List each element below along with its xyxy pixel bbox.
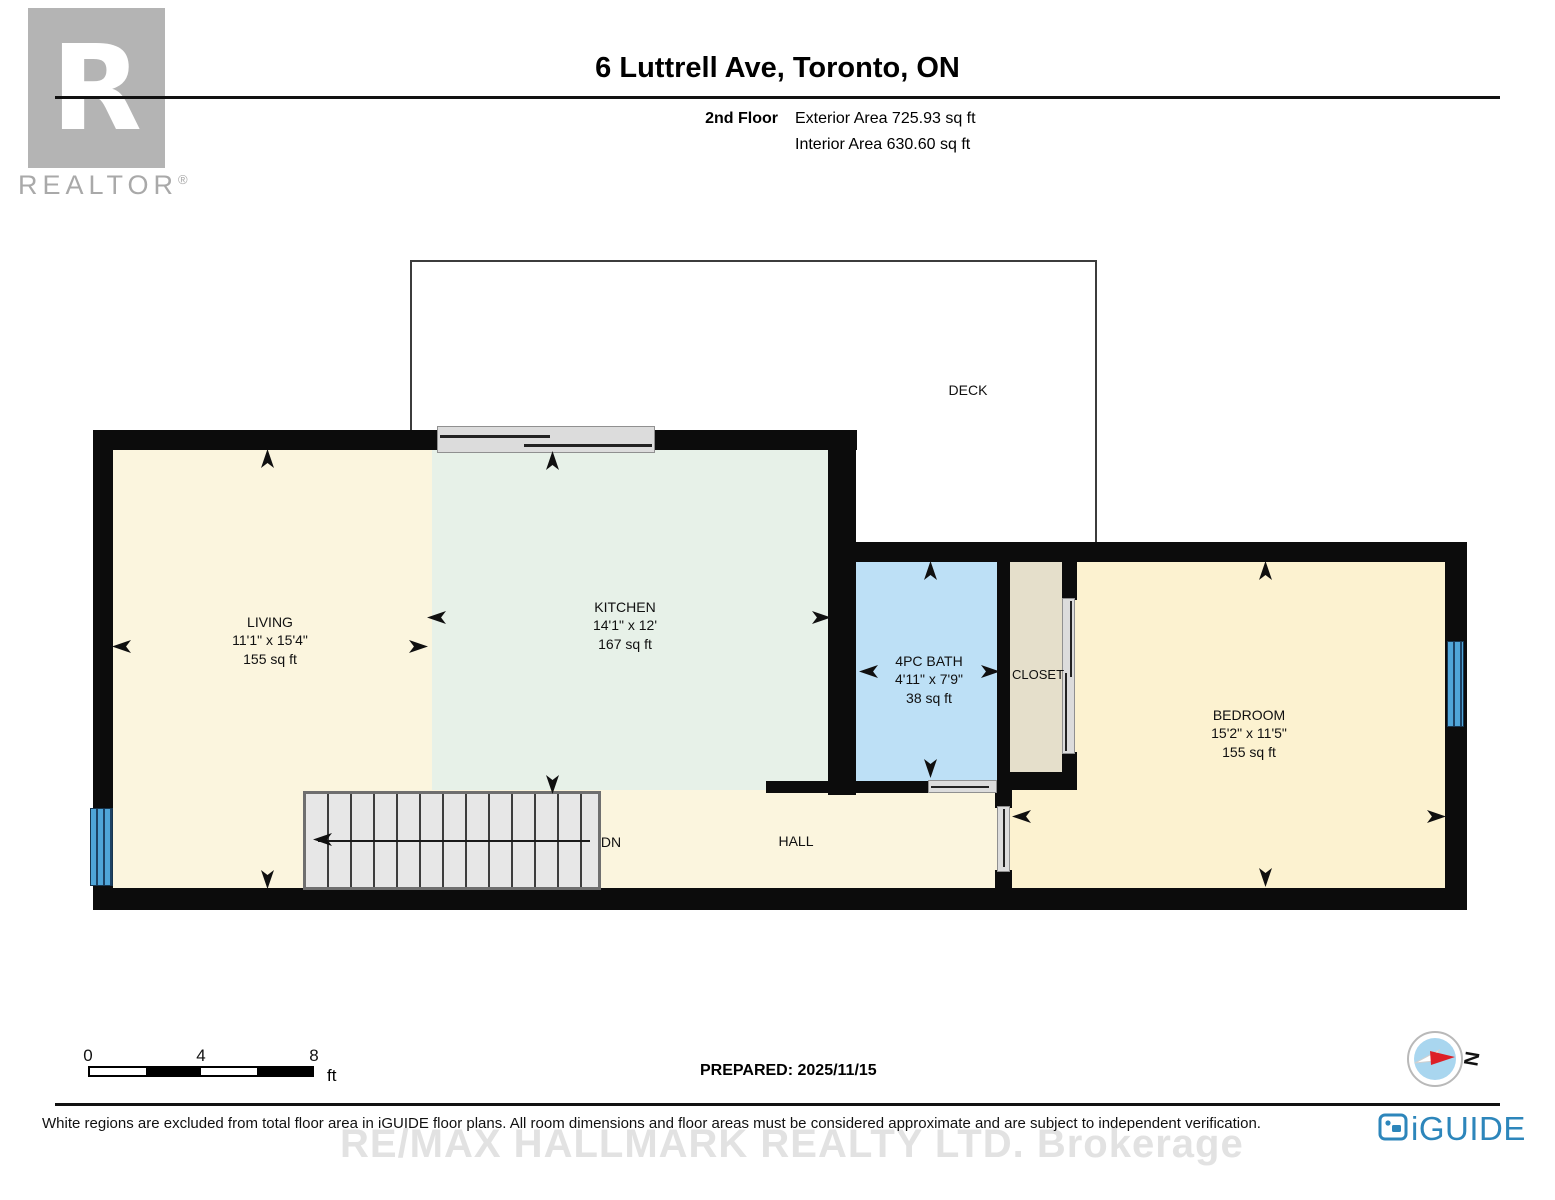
closet-label: CLOSET xyxy=(1012,666,1064,683)
living-dims: 11'1" x 15'4" xyxy=(232,631,308,649)
door-panel-line xyxy=(1003,809,1005,867)
kitchen-area: 167 sq ft xyxy=(593,635,657,653)
hall-label: HALL xyxy=(778,832,813,850)
wall-top-right-section xyxy=(845,542,1467,562)
sliding-door-bedroom xyxy=(997,806,1010,872)
scale-tick-0: 0 xyxy=(81,1046,95,1066)
realtor-word: REALTOR xyxy=(18,170,178,200)
iguide-camera-icon xyxy=(1378,1112,1408,1147)
bedroom-area: 155 sq ft xyxy=(1211,743,1287,761)
footer-disclaimer: White regions are excluded from total fl… xyxy=(42,1115,1261,1132)
staircase xyxy=(303,791,601,890)
compass-icon xyxy=(1406,1030,1464,1093)
scale-unit: ft xyxy=(327,1066,336,1086)
bath-name: 4PC BATH xyxy=(895,652,963,670)
door-panel-line xyxy=(931,786,989,788)
floorplan-page: 6 Luttrell Ave, Toronto, ON 2nd Floor Ex… xyxy=(0,0,1555,1200)
scale-segment xyxy=(201,1068,257,1075)
kitchen-label: KITCHEN 14'1" x 12' 167 sq ft xyxy=(593,598,657,653)
wall-hall-door-bottom xyxy=(995,870,1012,890)
bath-dims: 4'11" x 7'9" xyxy=(895,670,963,688)
living-area: 155 sq ft xyxy=(232,650,308,668)
iguide-logo-text: iGUIDE xyxy=(1411,1110,1526,1148)
floor-label: 2nd Floor xyxy=(585,110,778,128)
wall-closet-right-top xyxy=(1062,560,1077,600)
deck-label: DECK xyxy=(949,381,988,399)
realtor-logo-letter: R xyxy=(51,19,142,157)
scale-tick-8: 8 xyxy=(307,1046,321,1066)
scale-segment xyxy=(257,1068,313,1075)
wall-kitchen-hall xyxy=(766,781,832,793)
interior-area: Interior Area 630.60 sq ft xyxy=(795,136,970,154)
kitchen-name: KITCHEN xyxy=(593,598,657,616)
iguide-logo: iGUIDE xyxy=(1378,1110,1526,1148)
scale-segment xyxy=(90,1068,146,1075)
wall-bath-bottom xyxy=(856,781,930,793)
wall-kitchen-right xyxy=(828,430,856,795)
door-panel-line xyxy=(524,444,652,447)
bedroom-name: BEDROOM xyxy=(1211,706,1287,724)
door-panel-line xyxy=(1065,673,1067,751)
window-bedroom xyxy=(1447,641,1464,727)
scale-segment xyxy=(146,1068,202,1075)
door-panel-line xyxy=(440,435,550,438)
bedroom-label: BEDROOM 15'2" x 11'5" 155 sq ft xyxy=(1211,706,1287,761)
page-title: 6 Luttrell Ave, Toronto, ON xyxy=(0,52,1555,85)
prepared-date: PREPARED: 2025/11/15 xyxy=(700,1062,877,1080)
stairs-dn-label: DN xyxy=(601,833,621,851)
registered-mark: ® xyxy=(178,172,188,187)
living-label: LIVING 11'1" x 15'4" 155 sq ft xyxy=(232,613,308,668)
stair-direction-line xyxy=(318,840,590,842)
wall-closet-right-bottom xyxy=(1062,752,1077,776)
kitchen-dims: 14'1" x 12' xyxy=(593,616,657,634)
wall-bottom xyxy=(93,888,1467,910)
bedroom-dims: 15'2" x 11'5" xyxy=(1211,724,1287,742)
realtor-logo-icon: R xyxy=(28,8,165,168)
bath-label: 4PC BATH 4'11" x 7'9" 38 sq ft xyxy=(895,652,963,707)
door-panel-line xyxy=(1070,601,1072,677)
window-living xyxy=(90,808,113,886)
scale-tick-4: 4 xyxy=(194,1046,208,1066)
sliding-door-bath xyxy=(928,780,997,793)
realtor-logo-text: REALTOR® xyxy=(18,170,198,201)
wall-bath-right xyxy=(997,560,1010,790)
bath-area: 38 sq ft xyxy=(895,689,963,707)
living-name: LIVING xyxy=(232,613,308,631)
scale-bar xyxy=(88,1066,314,1077)
sliding-door-kitchen-deck xyxy=(437,426,655,453)
header-divider xyxy=(55,96,1500,99)
exterior-area: Exterior Area 725.93 sq ft xyxy=(795,110,976,128)
footer-divider xyxy=(55,1103,1500,1106)
